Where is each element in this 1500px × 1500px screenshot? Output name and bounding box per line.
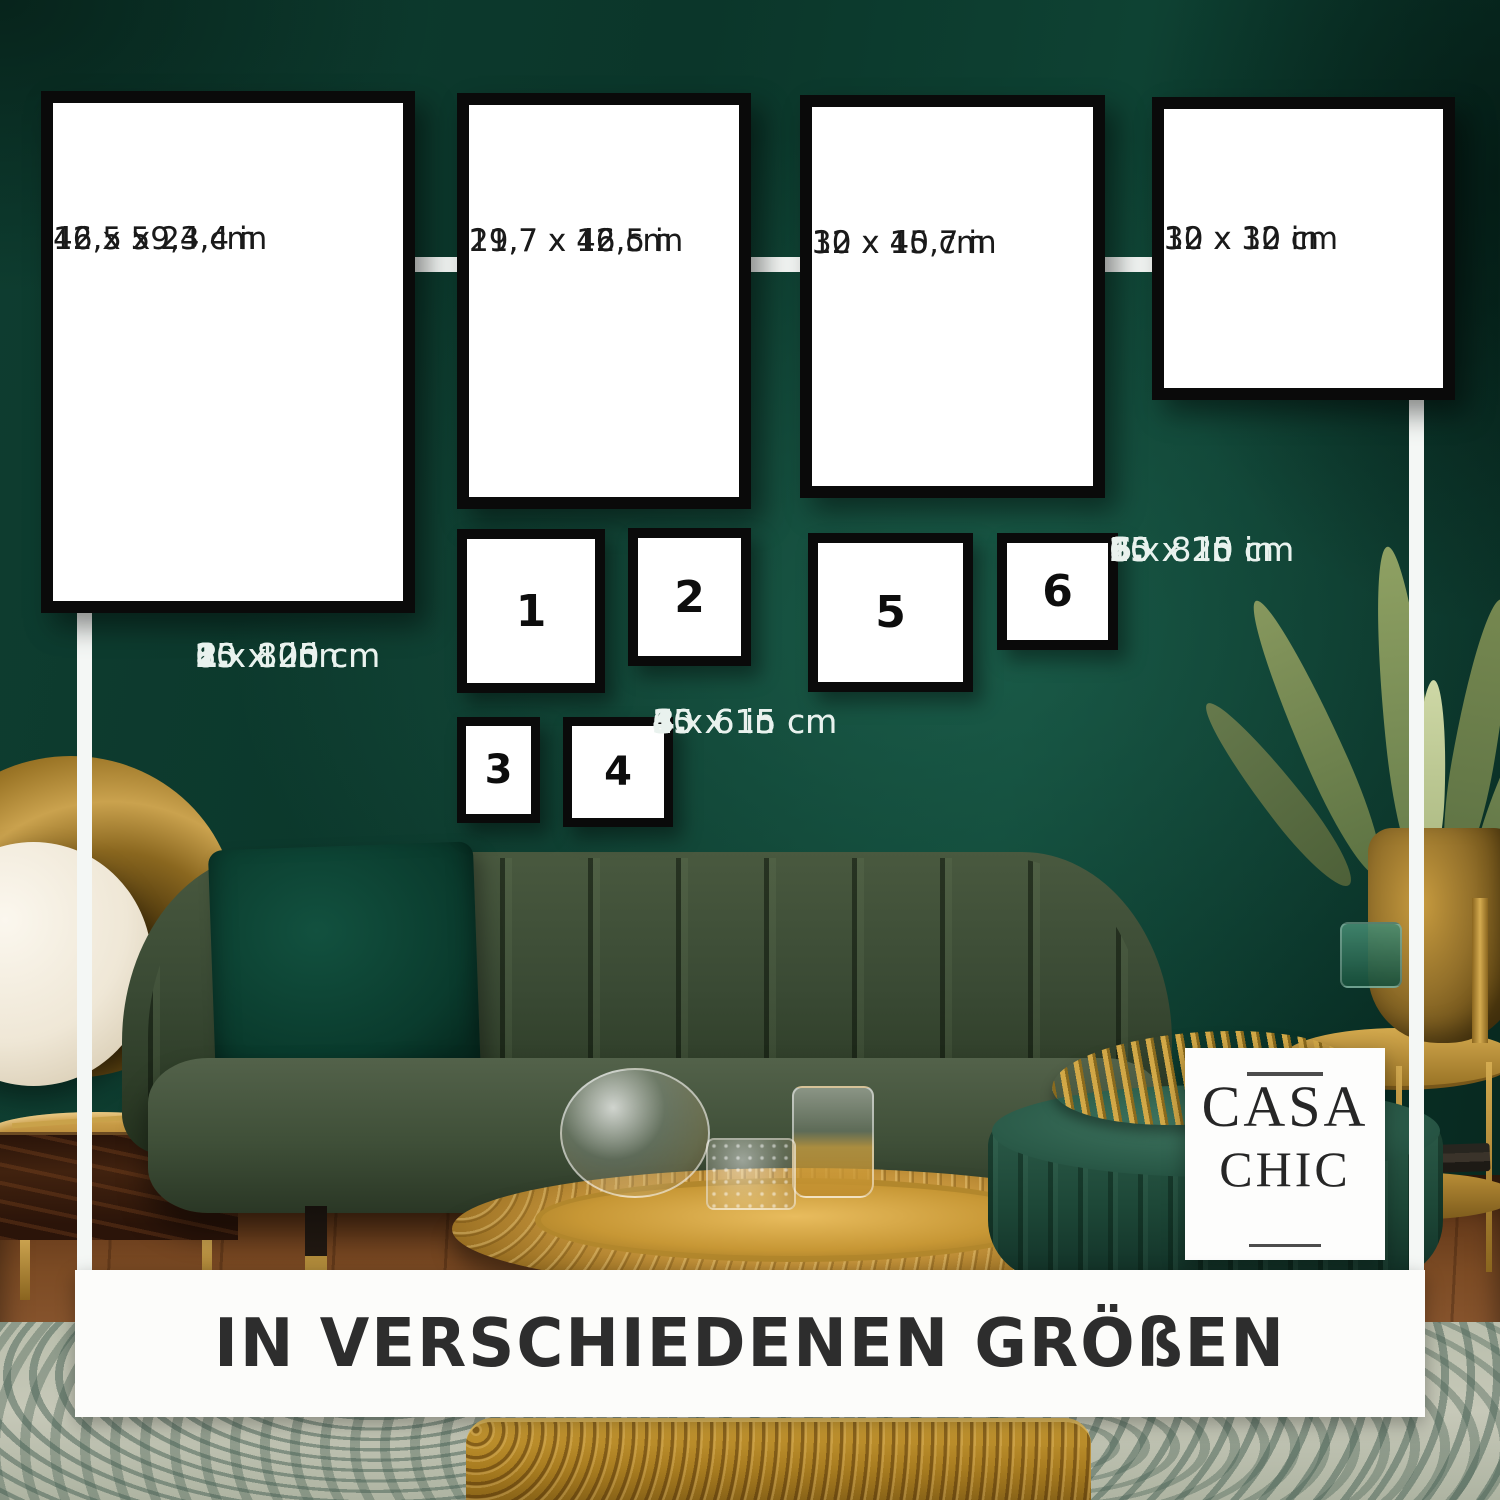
legend-in: 8 x 8 in (1109, 531, 1232, 569)
frame-number: 2 (638, 538, 741, 656)
frame-numbered-3: 3 (457, 717, 540, 823)
connector-line-right (1409, 398, 1424, 1272)
logo-word-chic: CHIC (1185, 1144, 1385, 1194)
frame-numbered-6: 6 (997, 533, 1118, 650)
legend-in: 6 x 6 in (652, 704, 775, 739)
frame-numbered-2: 2 (628, 528, 751, 666)
frame-number: 1 (467, 539, 595, 683)
green-glass (1340, 922, 1402, 988)
sofa-leg (305, 1206, 327, 1270)
frame-numbered-1: 1 (457, 529, 605, 693)
logo-word-casa: CASA (1185, 1078, 1385, 1136)
gold-candlestick (1472, 898, 1488, 1043)
side-table-leg (20, 1240, 30, 1300)
connector-line-left (77, 610, 92, 1272)
frame-size-30x30: 30 x 30 cm 12 x 12 in (1152, 97, 1455, 400)
velvet-pillow (208, 841, 481, 1090)
legend-in: 6 x 8 in (195, 638, 318, 674)
frame-number: 3 (466, 726, 531, 814)
size-in: 11,7 x 16,5 in (469, 219, 683, 263)
brand-logo-casa-chic: CASA CHIC (1185, 1048, 1385, 1260)
textured-tumbler (706, 1138, 796, 1210)
tall-glass (792, 1086, 874, 1198)
size-in: 12 x 15,7 in (812, 221, 997, 265)
frame-size-29x42: 29,7 x 42 cm 11,7 x 16,5 in (457, 93, 751, 509)
frame-numbered-5: 5 (808, 533, 973, 692)
frame-number: 6 (1007, 543, 1108, 640)
logo-rule-bottom (1249, 1244, 1321, 1247)
frame-number: 4 (572, 726, 664, 818)
round-glass (560, 1068, 710, 1198)
frame-size-30x40: 30 x 40 cm 12 x 15,7 in (800, 95, 1105, 498)
frame-number: 5 (818, 543, 963, 682)
size-in: 16,5 x 23,4 in (53, 217, 267, 261)
hammered-gold-drum (466, 1418, 1091, 1500)
product-infographic: 42 x 59,4 cm 16,5 x 23,4 in 29,7 x 42 cm… (0, 0, 1500, 1500)
headline-text: IN VERSCHIEDENEN GRÖßEN (214, 1305, 1286, 1382)
frame-size-42x59: 42 x 59,4 cm 16,5 x 23,4 in (41, 91, 415, 613)
headline-banner: IN VERSCHIEDENEN GRÖßEN (75, 1270, 1425, 1417)
size-in: 12 x 12 in (1164, 217, 1319, 261)
